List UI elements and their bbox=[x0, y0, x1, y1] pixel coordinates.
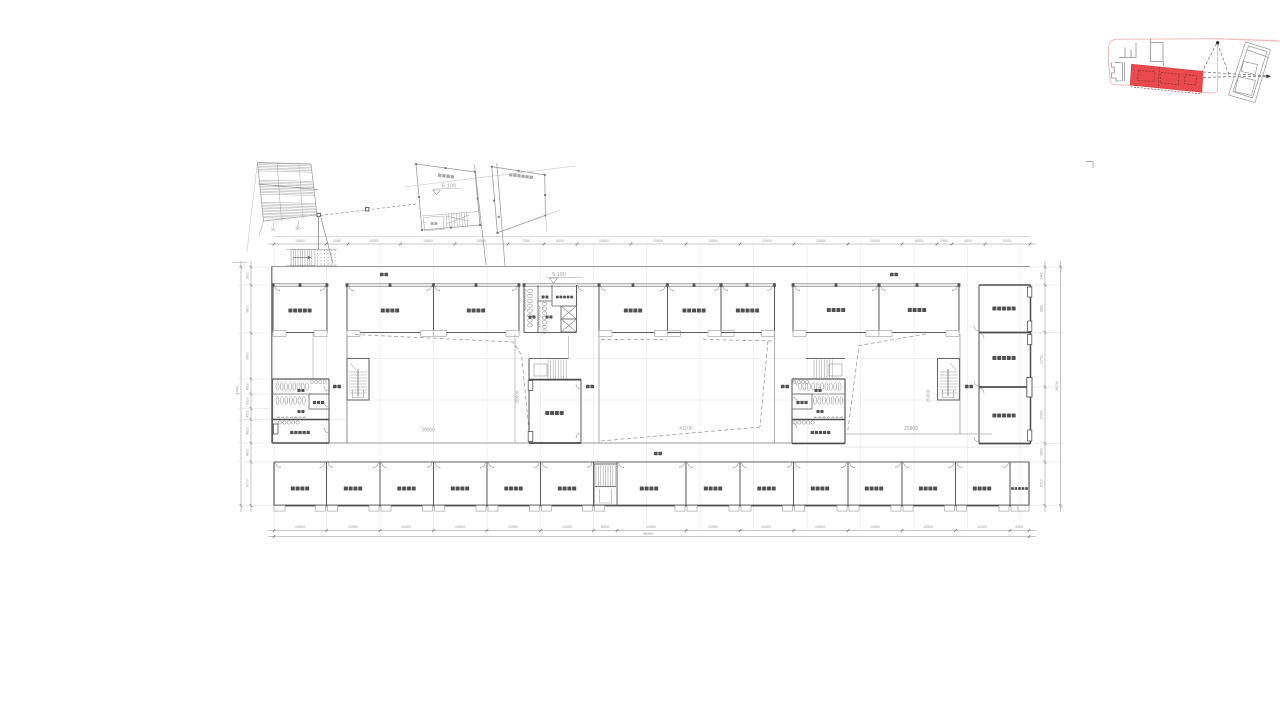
svg-text:4080: 4080 bbox=[333, 239, 341, 243]
svg-text:3300: 3300 bbox=[246, 397, 250, 405]
svg-text:39000: 39000 bbox=[421, 428, 435, 434]
svg-text:25800: 25800 bbox=[904, 426, 918, 432]
svg-text:8700: 8700 bbox=[246, 479, 250, 487]
svg-text:12500: 12500 bbox=[977, 525, 987, 529]
svg-text:10500: 10500 bbox=[653, 239, 663, 243]
svg-text:2900: 2900 bbox=[940, 239, 948, 243]
svg-text:10500: 10500 bbox=[295, 525, 305, 529]
svg-text:10500: 10500 bbox=[369, 239, 379, 243]
svg-text:4800: 4800 bbox=[246, 427, 250, 435]
svg-text:4800: 4800 bbox=[246, 449, 250, 457]
svg-text:5.100: 5.100 bbox=[552, 272, 566, 278]
svg-text:10500: 10500 bbox=[508, 525, 518, 529]
svg-text:47850: 47850 bbox=[236, 385, 240, 395]
svg-text:4500: 4500 bbox=[246, 383, 250, 391]
svg-text:41100: 41100 bbox=[679, 425, 693, 432]
svg-text:8700: 8700 bbox=[1040, 479, 1044, 487]
svg-text:10500: 10500 bbox=[348, 525, 358, 529]
svg-text:5800: 5800 bbox=[246, 305, 250, 313]
svg-text:1482: 1482 bbox=[1040, 272, 1044, 280]
svg-text:3900: 3900 bbox=[1015, 525, 1023, 529]
svg-text:12500: 12500 bbox=[562, 525, 572, 529]
svg-text:10500: 10500 bbox=[423, 239, 433, 243]
svg-text:10500: 10500 bbox=[870, 239, 880, 243]
svg-text:10500: 10500 bbox=[816, 239, 826, 243]
svg-text:10500: 10500 bbox=[923, 525, 933, 529]
svg-text:10500: 10500 bbox=[401, 525, 411, 529]
svg-text:9882: 9882 bbox=[1040, 305, 1044, 313]
svg-text:10500: 10500 bbox=[815, 525, 825, 529]
svg-text:96500: 96500 bbox=[643, 532, 653, 536]
svg-text:25000: 25000 bbox=[515, 390, 520, 403]
svg-text:6500: 6500 bbox=[556, 239, 564, 243]
svg-text:10752: 10752 bbox=[1040, 355, 1044, 365]
svg-text:3862: 3862 bbox=[1040, 448, 1044, 456]
svg-text:1800: 1800 bbox=[246, 272, 250, 280]
svg-text:6500: 6500 bbox=[601, 525, 609, 529]
svg-text:10500: 10500 bbox=[455, 525, 465, 529]
svg-text:7050: 7050 bbox=[522, 239, 530, 243]
svg-text:4500: 4500 bbox=[246, 410, 250, 418]
svg-text:10500: 10500 bbox=[762, 239, 772, 243]
svg-text:46134: 46134 bbox=[1055, 381, 1059, 391]
svg-text:6900: 6900 bbox=[915, 239, 923, 243]
svg-text:9400: 9400 bbox=[246, 352, 250, 360]
svg-text:9100: 9100 bbox=[1003, 239, 1011, 243]
svg-text:10962: 10962 bbox=[1040, 410, 1044, 420]
svg-text:10500: 10500 bbox=[476, 239, 486, 243]
svg-text:10500: 10500 bbox=[599, 239, 609, 243]
svg-text:4800: 4800 bbox=[964, 239, 972, 243]
svg-text:10500: 10500 bbox=[870, 525, 880, 529]
svg-text:10500: 10500 bbox=[708, 525, 718, 529]
svg-text:12500: 12500 bbox=[646, 525, 656, 529]
svg-text:10500: 10500 bbox=[295, 239, 305, 243]
svg-text:10500: 10500 bbox=[761, 525, 771, 529]
svg-text:25000: 25000 bbox=[926, 389, 931, 402]
svg-text:10500: 10500 bbox=[708, 239, 718, 243]
